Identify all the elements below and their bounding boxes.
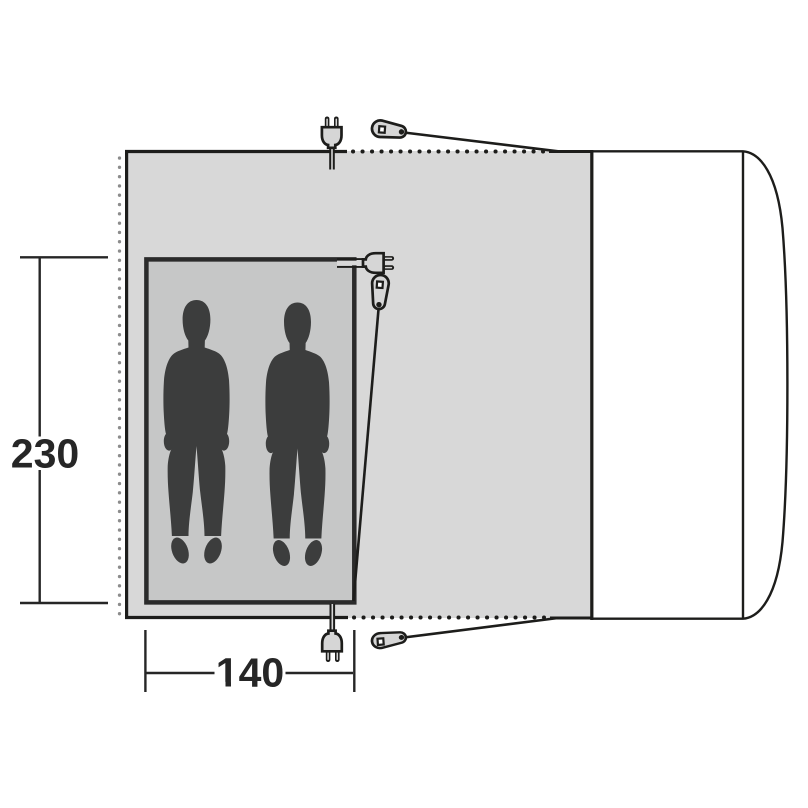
svg-text:140: 140 bbox=[216, 650, 284, 696]
svg-text:230: 230 bbox=[11, 431, 79, 477]
